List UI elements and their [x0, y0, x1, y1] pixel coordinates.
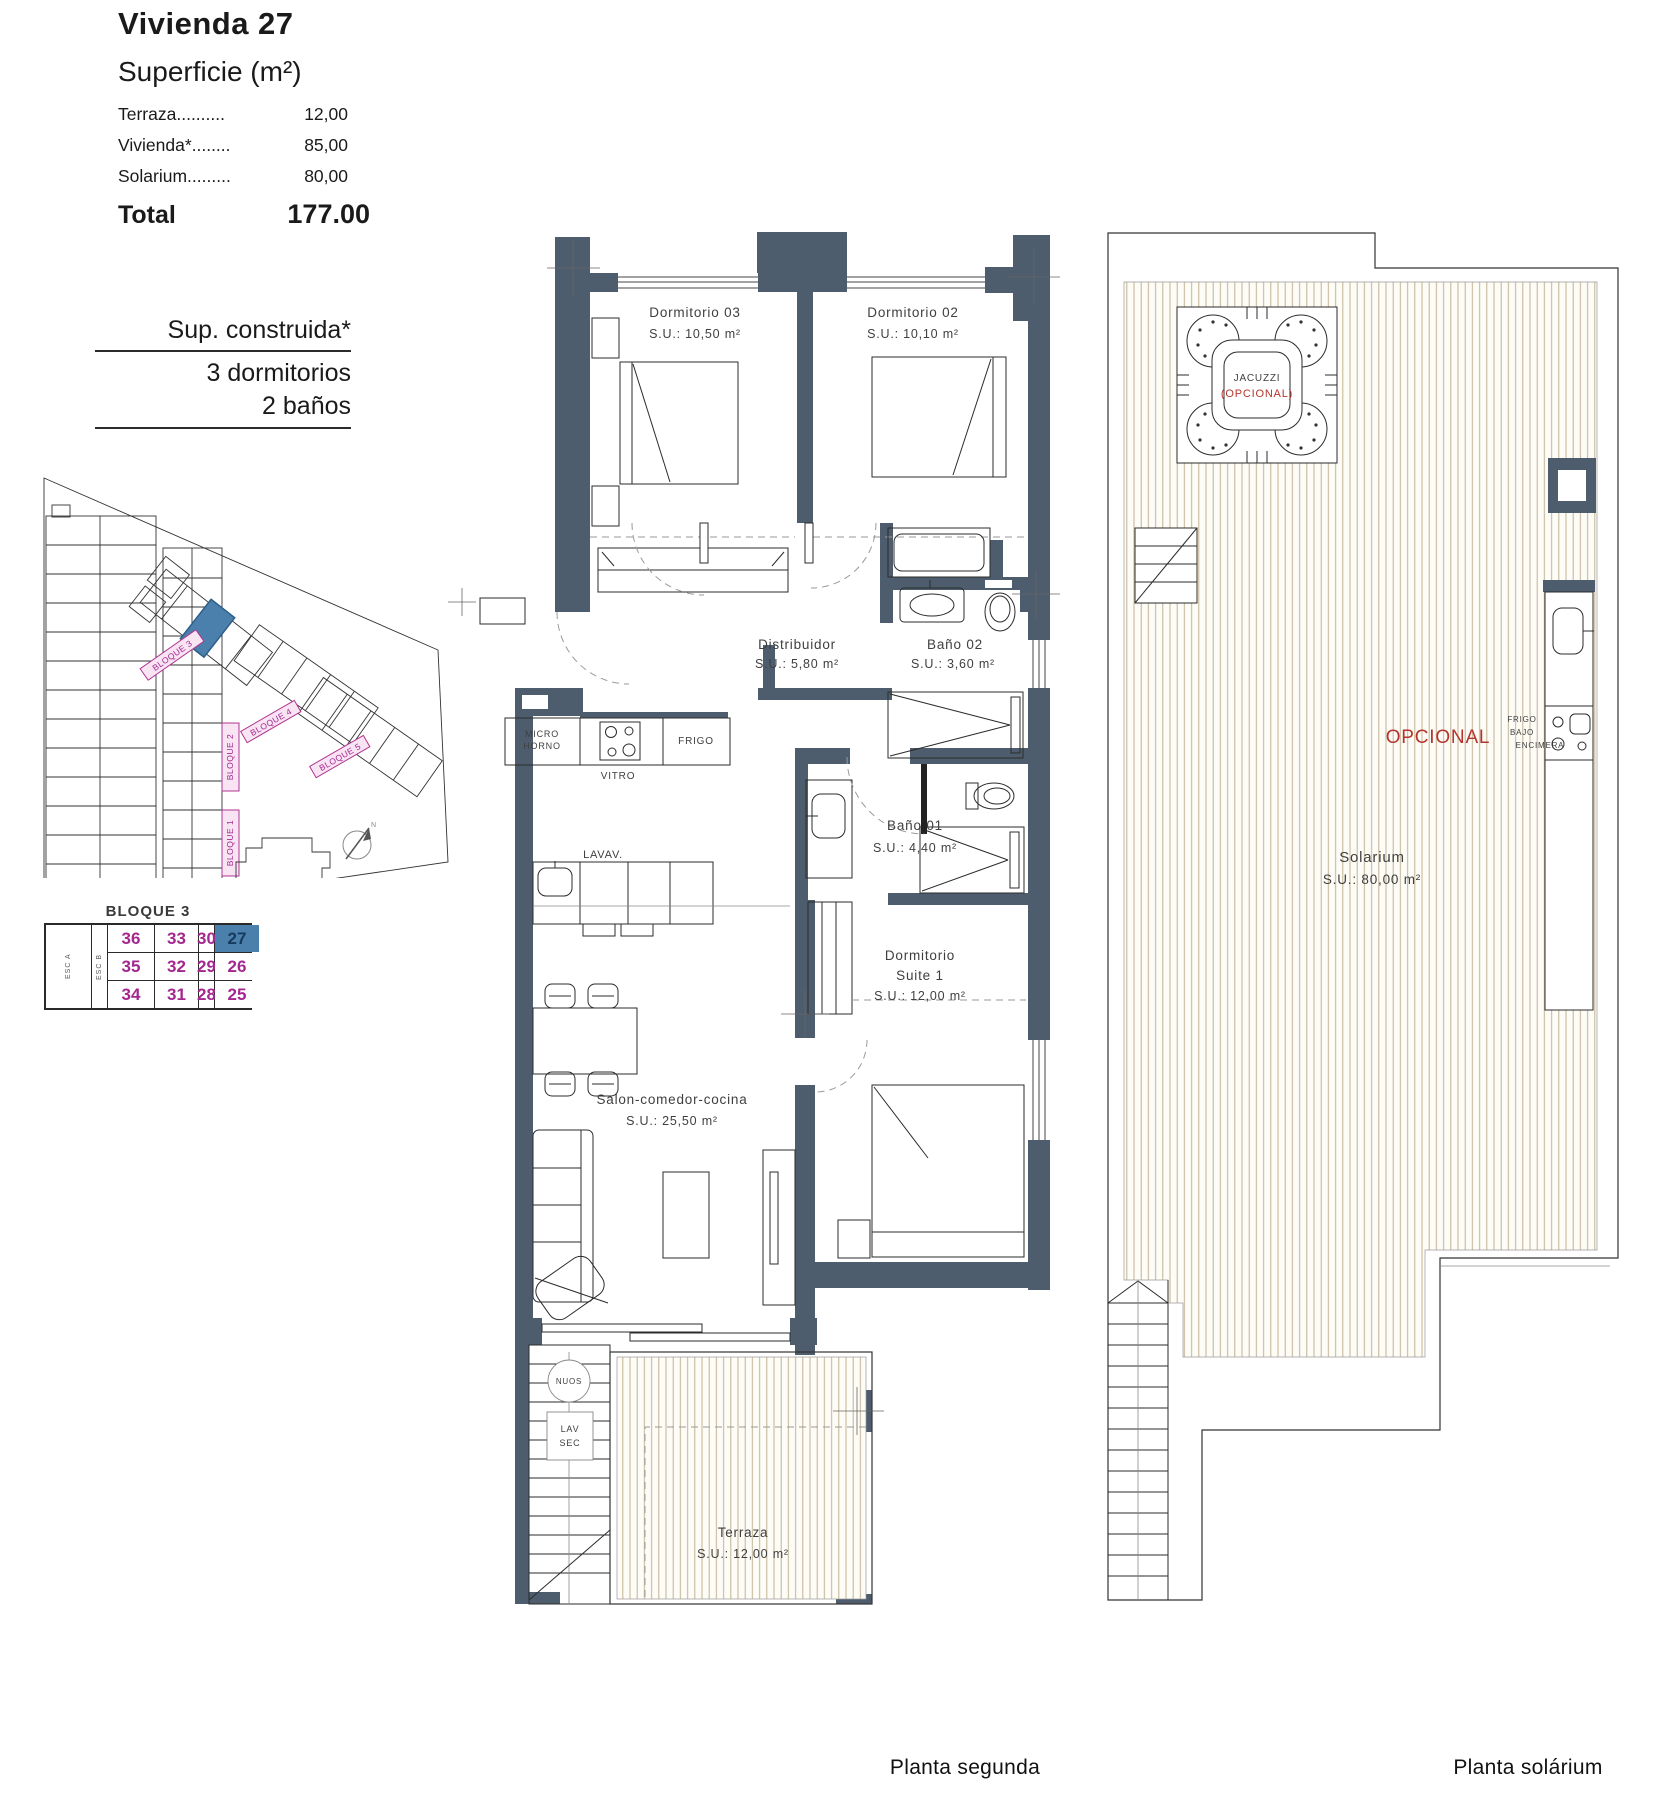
- dining-table: [533, 1008, 637, 1074]
- sink: [538, 868, 572, 896]
- unit-cell: 32: [155, 953, 198, 980]
- dormitorio02-furniture: [872, 357, 1006, 477]
- coffee-table: [663, 1172, 709, 1258]
- unit-cell: 31: [155, 981, 198, 1008]
- site-bloque5-strip: [298, 678, 442, 797]
- total-label: Total: [118, 201, 176, 230]
- unit-cell: 29: [199, 953, 214, 980]
- surface-row-terraza: Terraza.......... 12,00: [118, 104, 348, 125]
- toilet: [974, 783, 1014, 809]
- jacuzzi-opcional-label: (OPCIONAL): [1221, 388, 1293, 400]
- salon-label: Salon-comedor-cocina: [596, 1092, 747, 1107]
- vitro-label: VITRO: [601, 771, 636, 782]
- distribuidor-area: S.U.: 5,80 m²: [755, 657, 839, 671]
- spec-line-construida: Sup. construida*: [95, 316, 351, 352]
- door-arcs: [557, 523, 924, 1092]
- total-value: 177.00: [287, 199, 370, 230]
- frigo-label: FRIGO: [678, 736, 714, 747]
- surface-total-row: Total 177.00: [118, 199, 370, 230]
- bloque3-label-group: BLOQUE 3: [140, 630, 204, 680]
- unit-cell: 33: [155, 925, 198, 952]
- jacuzzi: JACUZZI (OPCIONAL): [1177, 307, 1337, 463]
- caption-planta-solarium: Planta solárium: [1378, 1756, 1653, 1780]
- site-small-buildings: [128, 556, 190, 623]
- bloque4-label: BLOQUE 4: [248, 706, 293, 738]
- esc-a-label: ESC A: [46, 925, 91, 1008]
- unit-table-title: BLOQUE 3: [44, 903, 252, 920]
- surface-rows: Terraza.......... 12,00 Vivienda*.......…: [118, 104, 378, 187]
- page-title: Vivienda 27: [118, 6, 378, 42]
- bano02-area: S.U.: 3,60 m²: [911, 657, 995, 671]
- dormitorio03-label: Dormitorio 03: [649, 305, 740, 320]
- unit-cell: 28: [199, 981, 214, 1008]
- suite-area: S.U.: 12,00 m²: [874, 989, 966, 1003]
- shower: [920, 827, 1024, 893]
- dormitorio03-furniture: [592, 318, 738, 526]
- unit-cell: 26: [215, 953, 259, 980]
- unit-table: BLOQUE 3 36 ESC A 33 30 ESC B 27 35 32 2…: [44, 903, 252, 1010]
- toilet: [985, 593, 1015, 631]
- bloque1-label: BLOQUE 1: [225, 820, 235, 867]
- frigo-bajo-label-2: BAJO: [1510, 728, 1534, 737]
- bloque5-label-group: BLOQUE 5: [310, 735, 370, 777]
- tv-unit: [763, 1150, 795, 1305]
- surface-row-vivienda: Vivienda*........ 85,00: [118, 135, 348, 156]
- solarium-label: Solarium: [1339, 849, 1405, 866]
- surface-value: 85,00: [304, 135, 348, 156]
- kitchen-island: [533, 862, 713, 924]
- lavav-label: LAVAV.: [583, 849, 623, 861]
- dormitorio02-label: Dormitorio 02: [867, 305, 958, 320]
- north-label: N: [371, 822, 376, 829]
- bano02-label: Baño 02: [927, 637, 983, 652]
- surface-subtitle: Superficie (m²): [118, 56, 378, 88]
- info-panel: Vivienda 27 Superficie (m²) Terraza.....…: [118, 6, 378, 230]
- surface-row-solarium: Solarium......... 80,00: [118, 166, 348, 187]
- terrace: [610, 1352, 872, 1604]
- caption-planta-segunda: Planta segunda: [815, 1756, 1115, 1780]
- frigo-bajo-label-1: FRIGO: [1507, 715, 1536, 724]
- esc-b-label: ESC B: [92, 925, 107, 1008]
- dormitorio03-area: S.U.: 10,50 m²: [649, 327, 741, 341]
- unit-cell: 30: [199, 925, 214, 952]
- jacuzzi-label: JACUZZI: [1234, 373, 1281, 384]
- surface-label: Terraza..........: [118, 104, 225, 125]
- unit-table-grid: 36 ESC A 33 30 ESC B 27 35 32 29 26 34 3…: [44, 923, 252, 1010]
- site-plan: BLOQUE 2 BLOQUE 1 BLOQUE 3 BLOQUE 4 BLOQ…: [30, 398, 460, 878]
- sec-label: SEC: [560, 1438, 581, 1448]
- unit-cell-highlighted: 27: [215, 925, 259, 952]
- bathtub: [894, 534, 984, 571]
- terrace-slider: [542, 1324, 790, 1341]
- north-compass: N: [343, 822, 376, 859]
- horno-label: HORNO: [523, 741, 561, 751]
- nuos-label: NUOS: [556, 1377, 582, 1386]
- unit-cell: 35: [108, 953, 154, 980]
- unit-cell: 36: [108, 925, 154, 952]
- site-club-building: [236, 838, 330, 878]
- cooktop: [600, 722, 640, 760]
- site-boundary: [44, 478, 448, 878]
- distribuidor-label: Distribuidor: [758, 637, 836, 652]
- suite-bed: [872, 1085, 1024, 1257]
- solarium-stairs: [1108, 1280, 1168, 1600]
- bano01-label: Baño 01: [887, 818, 943, 833]
- unit-cell: 34: [108, 981, 154, 1008]
- surface-value: 80,00: [304, 166, 348, 187]
- washer-dryer: [547, 1412, 593, 1460]
- sofa: [533, 1130, 593, 1302]
- frigo-bajo-label-3: ENCIMERA: [1516, 741, 1565, 750]
- lav-label: LAV: [561, 1424, 580, 1434]
- unit-cell: 25: [215, 981, 259, 1008]
- surface-label: Vivienda*........: [118, 135, 231, 156]
- opcional-label: OPCIONAL: [1386, 727, 1491, 748]
- registration-crosshairs: [448, 240, 1060, 1435]
- micro-label: MICRO: [525, 729, 559, 739]
- windows: [618, 273, 1050, 1140]
- spec-line-dormitorios: 3 dormitorios: [95, 359, 351, 388]
- surface-value: 12,00: [304, 104, 348, 125]
- planta-solarium-plan: JACUZZI (OPCIONAL): [1108, 233, 1618, 1600]
- suite-label-1: Dormitorio: [885, 948, 955, 963]
- bloque2-label: BLOQUE 2: [225, 734, 235, 781]
- solarium-area: S.U.: 80,00 m²: [1323, 872, 1421, 887]
- bloque3-label: BLOQUE 3: [150, 638, 194, 673]
- bloque5-label: BLOQUE 5: [317, 741, 362, 773]
- site-small-box: [52, 505, 70, 517]
- site-terraced-block: [46, 516, 156, 878]
- floor-plans: Dormitorio 03 S.U.: 10,50 m² Dormitorio …: [440, 190, 1653, 1630]
- duct-box: [480, 598, 525, 624]
- bloque4-label-group: BLOQUE 4: [241, 700, 301, 742]
- terraza-area: S.U.: 12,00 m²: [697, 1547, 789, 1561]
- dormitorio02-area: S.U.: 10,10 m²: [867, 327, 959, 341]
- solarium-stair-arrival: [1135, 528, 1197, 603]
- salon-area: S.U.: 25,50 m²: [626, 1114, 718, 1128]
- suite-label-2: Suite 1: [896, 968, 944, 983]
- surface-label: Solarium.........: [118, 166, 231, 187]
- bano01-area: S.U.: 4,40 m²: [873, 841, 957, 855]
- planta-segunda-plan: Dormitorio 03 S.U.: 10,50 m² Dormitorio …: [448, 232, 1060, 1604]
- terraza-label: Terraza: [718, 1525, 769, 1540]
